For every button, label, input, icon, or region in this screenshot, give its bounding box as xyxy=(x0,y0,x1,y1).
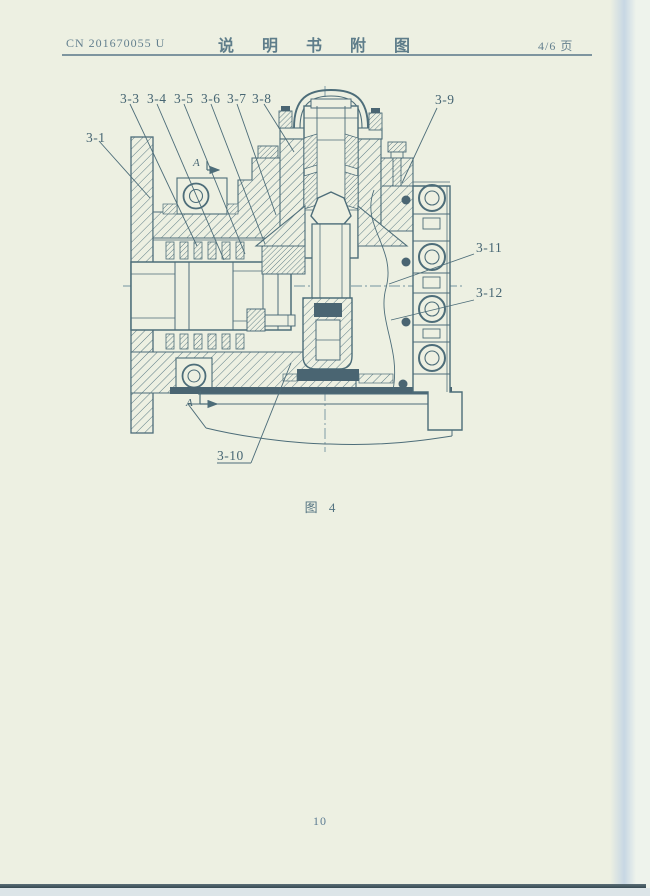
callout-label-3-9: 3-9 xyxy=(435,92,455,108)
bearing-cup xyxy=(283,298,393,383)
figure-caption: 图 4 xyxy=(0,497,644,516)
callout-label-3-7: 3-7 xyxy=(227,91,247,107)
callout-label-3-3: 3-3 xyxy=(120,91,140,107)
section-letter-top: A xyxy=(193,157,200,169)
callout-label-3-12: 3-12 xyxy=(476,285,503,301)
page-edge-shadow xyxy=(610,0,636,888)
page-number: 10 xyxy=(0,814,640,829)
callout-label-3-8: 3-8 xyxy=(252,91,272,107)
page-edge-margin xyxy=(636,0,650,888)
callout-label-3-10: 3-10 xyxy=(217,448,244,464)
callout-label-3-11: 3-11 xyxy=(476,240,502,256)
lower-spline-row xyxy=(153,334,298,352)
section-letter-bottom: A xyxy=(186,397,193,409)
page-bottom-strip xyxy=(0,888,650,896)
callout-label-3-6: 3-6 xyxy=(201,91,221,107)
callout-label-3-4: 3-4 xyxy=(147,91,167,107)
base-plate xyxy=(170,387,452,444)
callout-label-3-1: 3-1 xyxy=(86,130,106,146)
callout-label-3-5: 3-5 xyxy=(174,91,194,107)
scanned-patent-page: { "header": { "patent_number": "CN 20167… xyxy=(0,0,650,896)
